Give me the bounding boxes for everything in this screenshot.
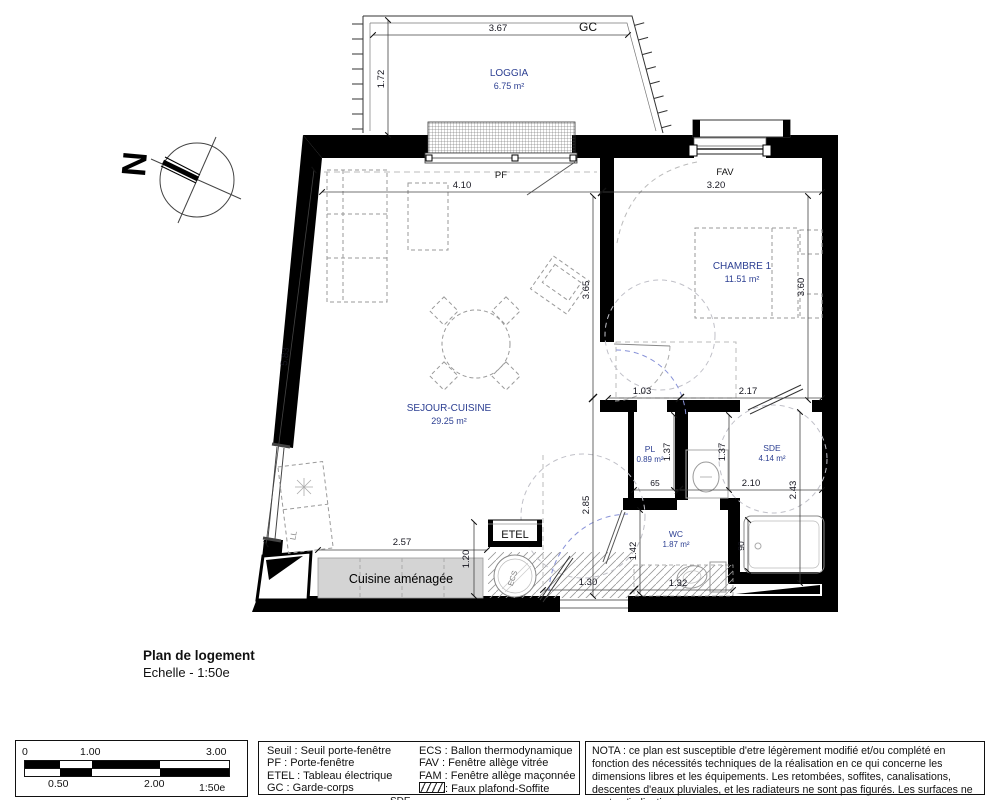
- dimension-label-14: 2.85: [581, 496, 592, 515]
- dimension-label-9: 1.37: [662, 443, 673, 462]
- dimension-label-2: 4.10: [453, 180, 472, 191]
- floor-plan-page: { "title": {"line1": "Plan de logement",…: [0, 0, 991, 800]
- room-label-0: LOGGIA: [490, 68, 529, 79]
- floor-plan-drawing: LOGGIA6.75 m²CHAMBRE 111.51 m²SEJOUR-CUI…: [0, 0, 991, 738]
- scale-label-1: 1.00: [80, 746, 100, 758]
- scale-bar-row-bottom: [24, 768, 230, 777]
- annotation-etel: ETEL: [501, 529, 529, 541]
- dimension-label-4: 5.83: [279, 347, 292, 367]
- scale-ratio: 1:50e: [199, 782, 225, 794]
- plan-labels: LOGGIA6.75 m²CHAMBRE 111.51 m²SEJOUR-CUI…: [115, 20, 807, 589]
- legend-item-fav: FAV : Fenêtre allège vitrée: [419, 757, 576, 769]
- room-label-2: SEJOUR-CUISINE: [407, 403, 492, 414]
- north-arrow: [151, 137, 241, 223]
- dimension-label-17: 2.57: [393, 537, 412, 548]
- north-letter: N: [115, 150, 155, 178]
- cutoff-text: SDE: [390, 796, 411, 800]
- nota-box: NOTA : ce plan est susceptible d'etre lé…: [585, 741, 985, 795]
- room-area-1: 11.51 m²: [725, 274, 760, 284]
- legend-column-1: Seuil : Seuil porte-fenêtre PF : Porte-f…: [267, 745, 392, 795]
- walls: [252, 135, 838, 612]
- dimension-label-1: 1.72: [376, 70, 387, 89]
- plan-title: Plan de logement: [143, 648, 255, 663]
- room-label-1: CHAMBRE 1: [713, 261, 772, 272]
- dimension-label-16: 90: [736, 541, 746, 551]
- dimension-label-6: 3.60: [796, 278, 807, 297]
- annotation-ll: LL: [288, 530, 299, 541]
- dimension-label-7: 1.03: [633, 386, 652, 397]
- west-window: [263, 444, 290, 541]
- room-area-5: 1.87 m²: [662, 540, 689, 549]
- duct-shaft: [257, 552, 311, 600]
- scale-label-2: 2.00: [144, 778, 164, 790]
- furniture: [278, 170, 822, 598]
- hatch-swatch-icon: [419, 782, 445, 793]
- room-area-0: 6.75 m²: [494, 81, 525, 91]
- legend: Seuil : Seuil porte-fenêtre PF : Porte-f…: [258, 741, 580, 795]
- dimension-label-3: 3.20: [707, 180, 726, 191]
- legend-item-soffite: : Faux plafond-Soffite: [419, 782, 576, 795]
- dimension-label-10: 1.37: [717, 443, 728, 462]
- dimension-label-13: 2.43: [788, 481, 799, 500]
- legend-item-soffite-label: : Faux plafond-Soffite: [445, 783, 549, 795]
- room-area-4: 4.14 m²: [758, 454, 785, 463]
- legend-item-ecs: ECS : Ballon thermodynamique: [419, 745, 576, 757]
- legend-item-pf: PF : Porte-fenêtre: [267, 757, 392, 769]
- dimension-label-15: 1.42: [628, 542, 639, 561]
- nota-text: NOTA : ce plan est susceptible d'etre lé…: [592, 745, 973, 800]
- entry-threshold: [560, 600, 628, 608]
- dimension-label-20: 1.32: [669, 578, 688, 589]
- room-area-2: 29.25 m²: [431, 416, 467, 426]
- legend-item-gc: GC : Garde-corps: [267, 782, 392, 794]
- appliance-star: [295, 478, 313, 496]
- dimension-label-18: 1.20: [461, 550, 472, 569]
- dimension-label-19: 1.30: [579, 577, 598, 588]
- annotation-pf: PF: [495, 170, 507, 181]
- dimension-label-11: 65: [650, 478, 660, 488]
- scale-label-05: 0.50: [48, 778, 68, 790]
- room-area-3: 0.89 m²: [636, 455, 663, 464]
- room-label-3: PL: [645, 444, 656, 454]
- room-label-5: WC: [669, 529, 683, 539]
- legend-column-2: ECS : Ballon thermodynamique FAV : Fenêt…: [419, 745, 576, 796]
- annotation-gc: GC: [579, 20, 597, 34]
- scale-label-0: 0: [22, 746, 28, 758]
- legend-item-seuil: Seuil : Seuil porte-fenêtre: [267, 745, 392, 757]
- dimension-label-5: 3.65: [581, 281, 592, 300]
- dimension-label-12: 2.10: [742, 478, 761, 489]
- legend-item-fam: FAM : Fenêtre allège maçonnée: [419, 770, 576, 782]
- plan-scale-subtitle: Echelle - 1:50e: [143, 665, 230, 680]
- dimension-label-8: 2.17: [739, 386, 758, 397]
- scale-label-3: 3.00: [206, 746, 226, 758]
- annotation-cuisine-am-nag-e: Cuisine aménagée: [349, 572, 453, 586]
- room-label-4: SDE: [763, 443, 781, 453]
- pf-window: [425, 122, 577, 195]
- annotation-fav: FAV: [716, 167, 734, 178]
- legend-item-etel: ETEL : Tableau électrique: [267, 770, 392, 782]
- dimension-label-0: 3.67: [489, 23, 508, 34]
- scale-bar: 0 1.00 3.00 0.50 2.00 1:50e: [15, 740, 248, 797]
